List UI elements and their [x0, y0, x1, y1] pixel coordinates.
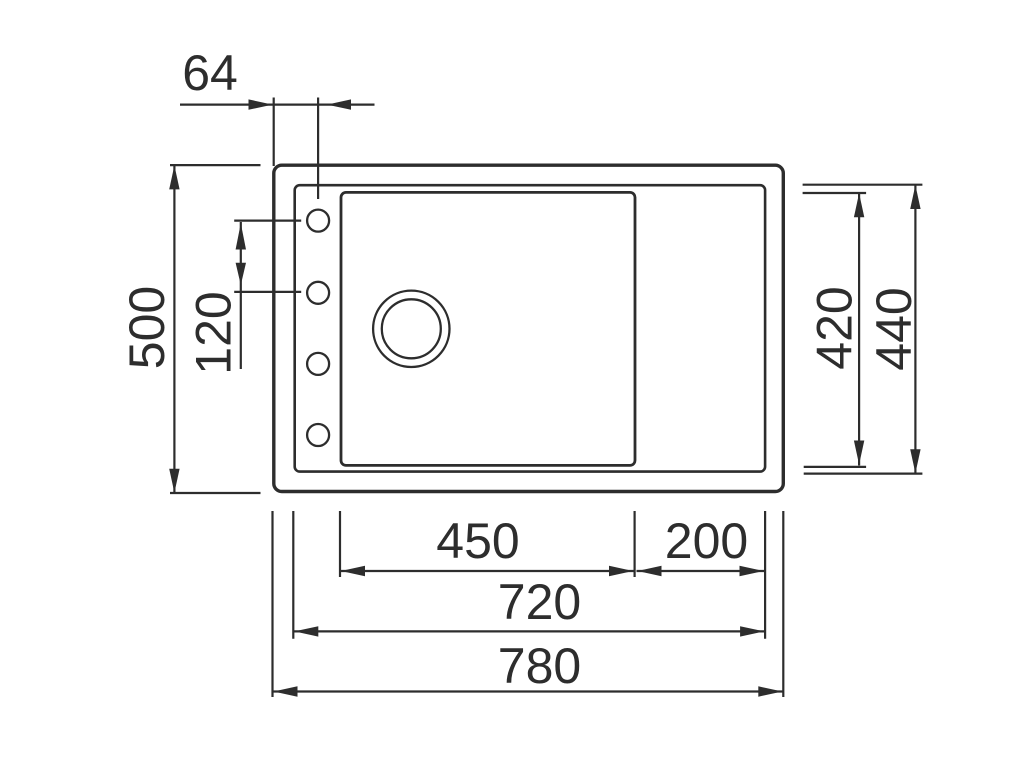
svg-text:450: 450	[436, 513, 519, 569]
svg-text:420: 420	[807, 286, 863, 369]
svg-text:440: 440	[866, 287, 922, 370]
svg-text:64: 64	[182, 45, 238, 101]
svg-text:780: 780	[498, 638, 581, 694]
svg-text:200: 200	[665, 513, 748, 569]
svg-text:720: 720	[498, 574, 581, 630]
svg-text:120: 120	[186, 291, 242, 374]
svg-text:500: 500	[119, 286, 175, 369]
